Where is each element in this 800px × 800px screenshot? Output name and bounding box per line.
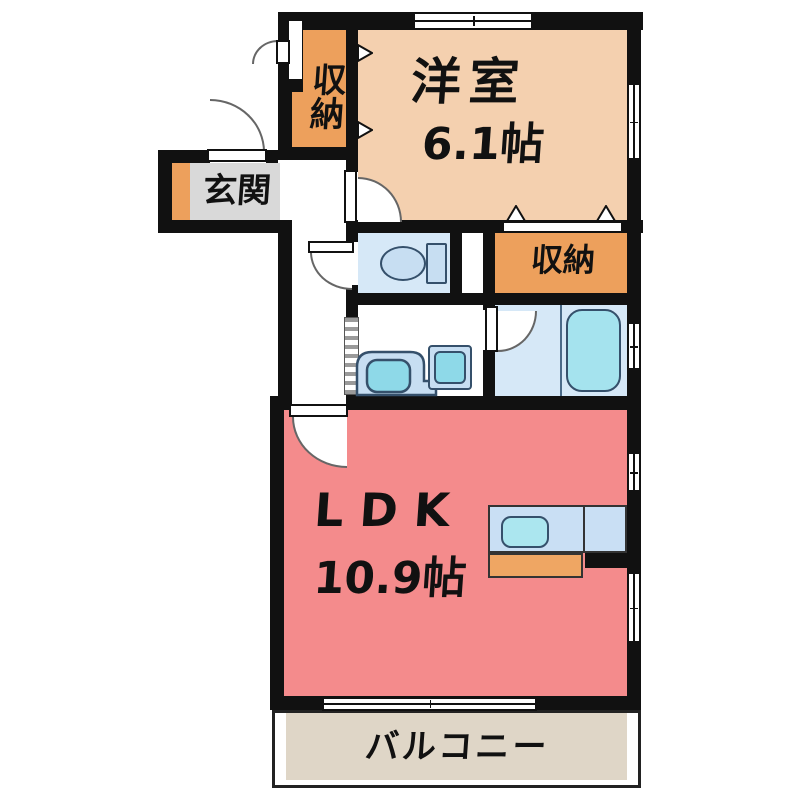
closet-door-mark-up-2: [596, 205, 616, 222]
toilet-tank: [426, 243, 447, 284]
label-ldk: LDK: [308, 486, 471, 534]
label-closet-top: 収納: [297, 48, 352, 144]
wall-toilet-right: [450, 233, 462, 293]
closet-door-mark-right-1: [357, 44, 373, 62]
ldk-door-leaf: [289, 404, 348, 417]
entry-step: [172, 163, 190, 220]
label-ldk-area: 10.9帖: [298, 556, 481, 602]
wall-ldk-left: [270, 396, 284, 710]
floor-plan: 洋室 6.1帖 収納 玄関 収納 LDK 10.9帖 バルコニー: [0, 0, 800, 800]
wall-entry-bottom: [158, 220, 292, 233]
label-closet-right: 収納: [507, 244, 619, 278]
label-entry: 玄関: [191, 174, 283, 210]
toilet-door-leaf: [308, 241, 354, 253]
window-right-ldk-lower: [627, 572, 641, 643]
entrance-door-arc: [210, 99, 265, 152]
label-balcony: バルコニー: [364, 730, 546, 766]
closet-door-mark-right-2: [357, 121, 373, 139]
label-western: 洋室: [408, 56, 530, 109]
wall-ldk-top-b: [347, 396, 641, 410]
bathtub: [566, 309, 621, 392]
washbasin: [354, 345, 438, 397]
entrance-door-leaf: [207, 149, 267, 162]
wall-hall-left: [278, 220, 292, 410]
wall-entry-top-stub: [266, 150, 278, 163]
window-top: [413, 12, 533, 30]
western-door-leaf: [344, 170, 357, 223]
service-door-arc: [252, 40, 278, 64]
wall-water-row-bottom: [346, 293, 641, 305]
closet-door-strip: [503, 222, 622, 232]
window-right-bath: [627, 322, 641, 370]
bath-door-leaf: [485, 306, 498, 352]
toilet-bowl: [380, 246, 426, 281]
window-balcony-sliding: [322, 697, 537, 711]
bath-divider: [560, 305, 562, 396]
kitchen-sink: [501, 516, 549, 548]
window-right-ldk-upper: [627, 452, 641, 492]
service-door-leaf: [276, 40, 290, 64]
washing-machine: [434, 351, 466, 384]
wall-bath-left-b: [483, 350, 495, 396]
closet-door-mark-up-1: [506, 205, 526, 222]
pipe-space: [462, 233, 483, 293]
window-right-western: [627, 83, 641, 160]
kitchen-counter-divider: [583, 505, 585, 553]
label-western-area: 6.1帖: [406, 122, 559, 168]
kitchen-range: [488, 553, 583, 578]
